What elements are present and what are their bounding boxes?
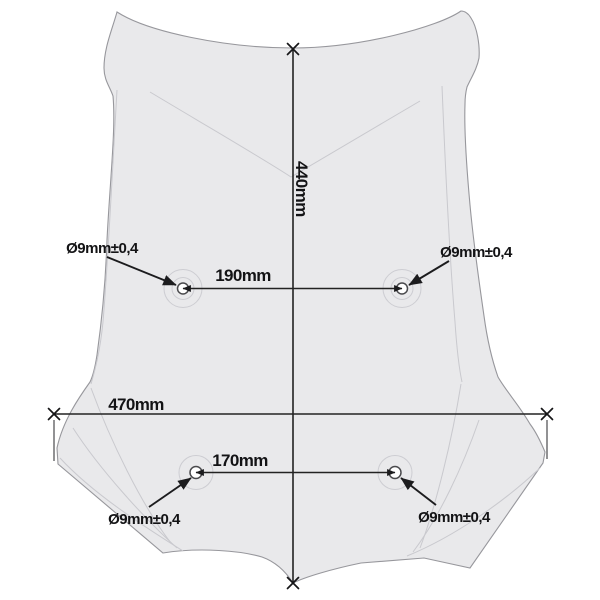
windscreen-technical-drawing: 440mm 470mm 190mm 170mm (0, 0, 600, 600)
bottom-holes-dimension-label: 170mm (212, 451, 268, 470)
windscreen-diagram-canvas: 440mm 470mm 190mm 170mm (0, 0, 600, 600)
hole-diameter-label-bottom-right: Ø9mm±0,4 (418, 509, 491, 526)
hole-diameter-label-top-right: Ø9mm±0,4 (440, 244, 513, 261)
height-dimension-label: 440mm (292, 161, 311, 217)
hole-diameter-label-top-left: Ø9mm±0,4 (66, 240, 139, 257)
windscreen-silhouette (57, 11, 545, 583)
hole-diameter-label-bottom-left: Ø9mm±0,4 (108, 511, 181, 528)
width-dimension-label: 470mm (108, 395, 164, 414)
top-holes-dimension-label: 190mm (215, 266, 271, 285)
